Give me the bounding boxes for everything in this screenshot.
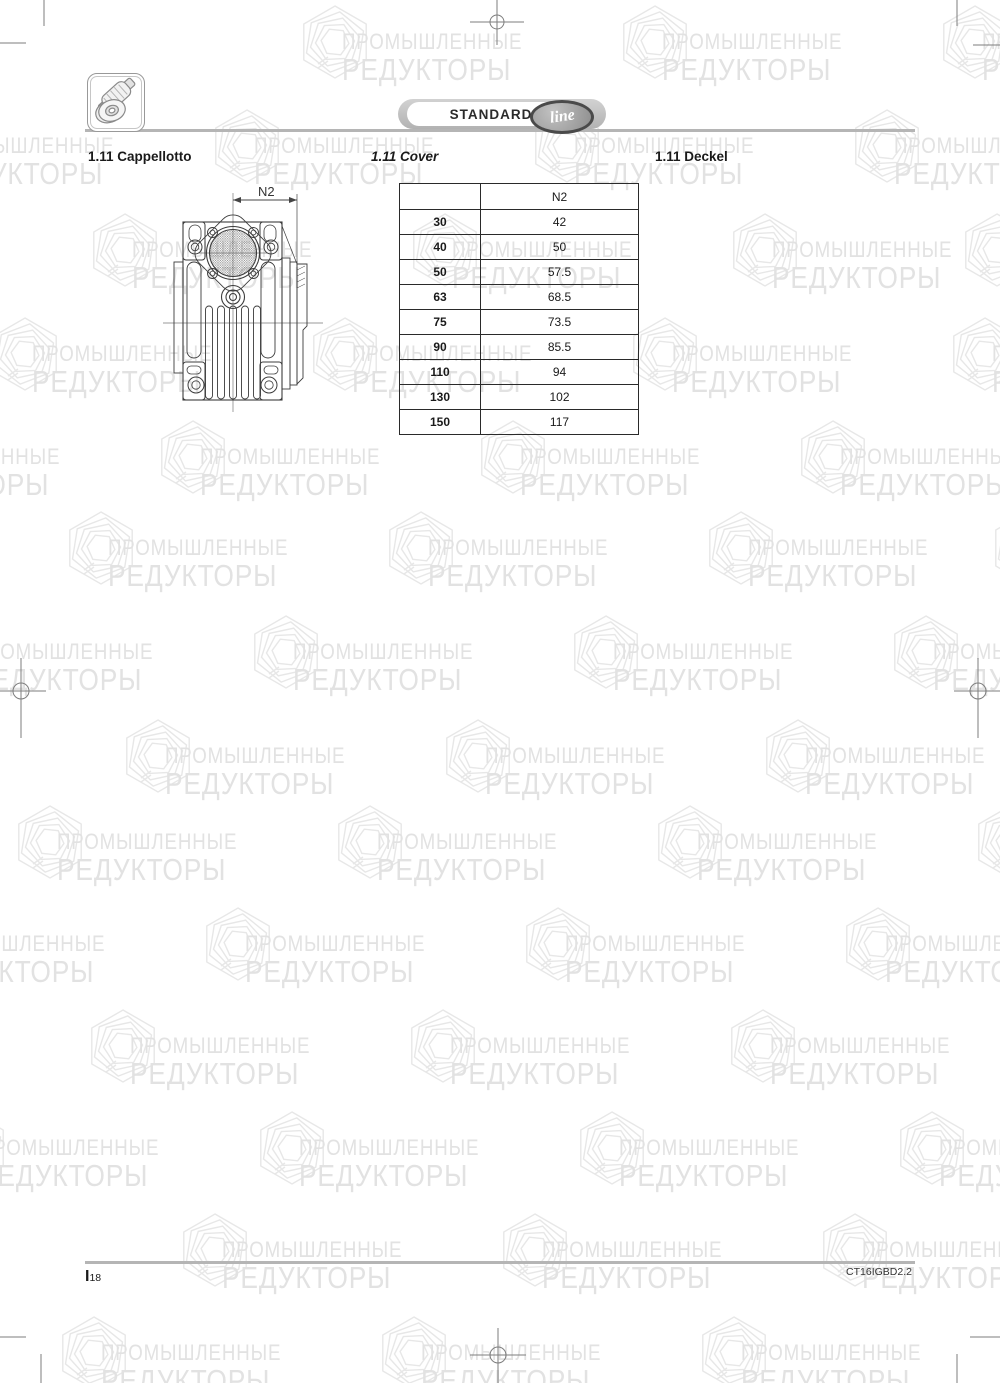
hexagon-spiral-icon	[618, 2, 693, 82]
watermark: ПРОМЫШЛЕННЫЕРЕДУКТОРЫ	[628, 314, 858, 400]
watermark-line2: РЕДУКТОРЫ	[672, 366, 852, 398]
watermark-line1: ПРОМЫШЛЕННЫЕ	[542, 1238, 722, 1262]
watermark: ПРОМЫШЛЕННЫЕРЕДУКТОРЫ	[178, 1210, 408, 1296]
watermark-text: ПРОМЫШЛЕННЫЕРЕДУКТОРЫ	[982, 30, 1000, 86]
hexagon-spiral-icon	[86, 1006, 161, 1086]
watermark-line2: РЕДУКТОРЫ	[741, 1365, 921, 1383]
hexagon-spiral-icon	[726, 1006, 801, 1086]
watermark: ПРОМЫШЛЕННЫЕРЕДУКТОРЫ	[249, 612, 479, 698]
table-row: 7573.5	[400, 310, 639, 335]
n2-table: N2 304240505057.56368.57573.59085.511094…	[399, 183, 639, 435]
watermark-text: ПРОМЫШЛЕННЫЕРЕДУКТОРЫ	[299, 1136, 479, 1192]
watermark-text: ПРОМЫШЛЕННЫЕРЕДУКТОРЫ	[613, 640, 793, 696]
watermark: ПРОМЫШЛЕННЫЕРЕДУКТОРЫ	[653, 802, 883, 888]
watermark: ПРОМЫШЛЕННЫЕРЕДУКТОРЫ	[298, 2, 528, 88]
watermark-line2: РЕДУКТОРЫ	[885, 956, 1000, 988]
watermark: ПРОМЫШЛЕННЫЕРЕДУКТОРЫ	[818, 1210, 1000, 1296]
watermark-line2: РЕДУКТОРЫ	[57, 854, 237, 886]
n2-table-body: 304240505057.56368.57573.59085.511094130…	[400, 210, 639, 435]
watermark-line1: ПРОМЫШЛЕННЫЕ	[748, 536, 928, 560]
catalog-page: ПРОМЫШЛЕННЫЕРЕДУКТОРЫПРОМЫШЛЕННЫЕРЕДУКТО…	[0, 0, 1000, 1383]
hexagon-spiral-icon	[521, 904, 596, 984]
watermark: ПРОМЫШЛЕННЫЕРЕДУКТОРЫ	[121, 716, 351, 802]
watermark: ПРОМЫШЛЕННЫЕРЕДУКТОРЫ	[64, 508, 294, 594]
watermark-text: ПРОМЫШЛЕННЫЕРЕДУКТОРЫ	[672, 342, 852, 398]
crop-mark-top-right	[957, 0, 1000, 45]
watermark-text: ПРОМЫШЛЕННЫЕРЕДУКТОРЫ	[450, 1034, 630, 1090]
watermark-line1: ПРОМЫШЛЕННЫЕ	[485, 744, 665, 768]
watermark: ПРОМЫШЛЕННЫЕРЕДУКТОРЫ	[761, 716, 991, 802]
crop-mark-bottom-left	[0, 1337, 41, 1383]
worm-gearbox-icon	[87, 73, 145, 132]
table-row: 5057.5	[400, 260, 639, 285]
watermark-line1: ПРОМЫШЛЕННЫЕ	[293, 640, 473, 664]
hexagon-spiral-icon	[697, 1313, 772, 1383]
watermark-line2: РЕДУКТОРЫ	[0, 956, 105, 988]
hexagon-spiral-icon	[889, 612, 964, 692]
hexagon-spiral-icon	[88, 210, 163, 290]
watermark-text: ПРОМЫШЛЕННЫЕРЕДУКТОРЫ	[748, 536, 928, 592]
watermark-text: ПРОМЫШЛЕННЫЕРЕДУКТОРЫ	[697, 830, 877, 886]
standard-label: STANDARD	[450, 107, 533, 122]
watermark-line1: ПРОМЫШЛЕННЫЕ	[0, 1136, 159, 1160]
table-row: 6368.5	[400, 285, 639, 310]
hexagon-spiral-icon	[850, 106, 925, 186]
hexagon-spiral-icon	[575, 1108, 650, 1188]
watermark: ПРОМЫШЛЕННЫЕРЕДУКТОРЫ	[384, 508, 614, 594]
hexagon-spiral-icon	[406, 1006, 481, 1086]
watermark-text: ПРОМЫШЛЕННЫЕРЕДУКТОРЫ	[772, 238, 952, 294]
watermark-line2: РЕДУКТОРЫ	[165, 768, 345, 800]
watermark-text: ПРОМЫШЛЕННЫЕРЕДУКТОРЫ	[165, 744, 345, 800]
watermark: ПРОМЫШЛЕННЫЕРЕДУКТОРЫ	[697, 1313, 927, 1383]
watermark: ПРОМЫШЛЕННЫЕРЕДУКТОРЫ	[0, 1108, 165, 1194]
watermark: ПРОМЫШЛЕННЫЕРЕДУКТОРЫ	[704, 508, 934, 594]
watermark: ПРОМЫШЛЕННЫЕРЕДУКТОРЫ	[850, 106, 1000, 192]
hexagon-spiral-icon	[653, 802, 728, 882]
watermark: ПРОМЫШЛЕННЫЕРЕДУКТОРЫ	[406, 1006, 636, 1092]
watermark-text: ПРОМЫШЛЕННЫЕРЕДУКТОРЫ	[741, 1341, 921, 1383]
watermark: ПРОМЫШЛЕННЫЕРЕДУКТОРЫ	[990, 508, 1000, 594]
hexagon-spiral-icon	[0, 314, 63, 394]
watermark-line2: РЕДУКТОРЫ	[342, 54, 522, 86]
table-row: 4050	[400, 235, 639, 260]
watermark-line1: ПРОМЫШЛЕННЫЕ	[0, 932, 105, 956]
heading-german: 1.11 Deckel	[655, 149, 728, 164]
watermark-text: ПРОМЫШЛЕННЫЕРЕДУКТОРЫ	[520, 445, 700, 501]
hexagon-spiral-icon	[498, 1210, 573, 1290]
hexagon-spiral-icon	[761, 716, 836, 796]
hexagon-spiral-icon	[255, 1108, 330, 1188]
watermark-line1: ПРОМЫШЛЕННЫЕ	[933, 640, 1000, 664]
watermark-line1: ПРОМЫШЛЕННЫЕ	[885, 932, 1000, 956]
watermark-line2: РЕДУКТОРЫ	[485, 768, 665, 800]
watermark: ПРОМЫШЛЕННЫЕРЕДУКТОРЫ	[895, 1108, 1000, 1194]
dimension-label: N2	[258, 186, 275, 199]
watermark: ПРОМЫШЛЕННЫЕРЕДУКТОРЫ	[938, 2, 1000, 88]
watermark-line1: ПРОМЫШЛЕННЫЕ	[862, 1238, 1000, 1262]
watermark-text: ПРОМЫШЛЕННЫЕРЕДУКТОРЫ	[377, 830, 557, 886]
watermark-line1: ПРОМЫШЛЕННЫЕ	[101, 1341, 281, 1365]
watermark-text: ПРОМЫШЛЕННЫЕРЕДУКТОРЫ	[933, 640, 1000, 696]
watermark-line2: РЕДУКТОРЫ	[992, 366, 1000, 398]
watermark-line2: РЕДУКТОРЫ	[101, 1365, 281, 1383]
hexagon-spiral-icon	[0, 1108, 10, 1188]
watermark: ПРОМЫШЛЕННЫЕРЕДУКТОРЫ	[521, 904, 751, 990]
watermark: ПРОМЫШЛЕННЫЕРЕДУКТОРЫ	[201, 904, 431, 990]
watermark-line2: РЕДУКТОРЫ	[245, 956, 425, 988]
watermark-line2: РЕДУКТОРЫ	[840, 469, 1000, 501]
watermark-text: ПРОМЫШЛЕННЫЕРЕДУКТОРЫ	[992, 342, 1000, 398]
watermark-line2: РЕДУКТОРЫ	[200, 469, 380, 501]
watermark-line2: РЕДУКТОРЫ	[0, 664, 153, 696]
watermark-line1: ПРОМЫШЛЕННЫЕ	[245, 932, 425, 956]
watermark: ПРОМЫШЛЕННЫЕРЕДУКТОРЫ	[57, 1313, 287, 1383]
watermark-text: ПРОМЫШЛЕННЫЕРЕДУКТОРЫ	[342, 30, 522, 86]
watermark-text: ПРОМЫШЛЕННЫЕРЕДУКТОРЫ	[565, 932, 745, 988]
watermark-line2: РЕДУКТОРЫ	[450, 1058, 630, 1090]
doc-code: CT16IGBD2.2	[0, 1266, 912, 1278]
watermark: ПРОМЫШЛЕННЫЕРЕДУКТОРЫ	[569, 612, 799, 698]
watermark-line1: ПРОМЫШЛЕННЫЕ	[165, 744, 345, 768]
watermark: ПРОМЫШЛЕННЫЕРЕДУКТОРЫ	[889, 612, 1000, 698]
watermark: ПРОМЫШЛЕННЫЕРЕДУКТОРЫ	[156, 417, 386, 503]
hexagon-spiral-icon	[628, 314, 703, 394]
watermark-text: ПРОМЫШЛЕННЫЕРЕДУКТОРЫ	[293, 640, 473, 696]
hexagon-spiral-icon	[960, 210, 1000, 290]
watermark-line2: РЕДУКТОРЫ	[565, 956, 745, 988]
heading-english: 1.11 Cover	[371, 149, 438, 164]
watermark: ПРОМЫШЛЕННЫЕРЕДУКТОРЫ	[618, 2, 848, 88]
watermark-line2: РЕДУКТОРЫ	[613, 664, 793, 696]
table-row: 3042	[400, 210, 639, 235]
watermark-line2: РЕДУКТОРЫ	[894, 158, 1000, 190]
size-cell: 75	[400, 310, 481, 335]
watermark-line2: РЕДУКТОРЫ	[933, 664, 1000, 696]
table-row: 11094	[400, 360, 639, 385]
watermark-line2: РЕДУКТОРЫ	[982, 54, 1000, 86]
n2-value-cell: 73.5	[481, 310, 639, 335]
n2-value-cell: 85.5	[481, 335, 639, 360]
watermark: ПРОМЫШЛЕННЫЕРЕДУКТОРЫ	[255, 1108, 485, 1194]
watermark-text: ПРОМЫШЛЕННЫЕРЕДУКТОРЫ	[245, 932, 425, 988]
watermark: ПРОМЫШЛЕННЫЕРЕДУКТОРЫ	[333, 802, 563, 888]
watermark-text: ПРОМЫШЛЕННЫЕРЕДУКТОРЫ	[0, 640, 153, 696]
size-cell: 130	[400, 385, 481, 410]
watermark-line1: ПРОМЫШЛЕННЫЕ	[57, 830, 237, 854]
watermark-line1: ПРОМЫШЛЕННЫЕ	[108, 536, 288, 560]
watermark-line2: РЕДУКТОРЫ	[0, 1160, 159, 1192]
watermark-line1: ПРОМЫШЛЕННЫЕ	[299, 1136, 479, 1160]
n2-value-cell: 117	[481, 410, 639, 435]
watermark-line2: РЕДУКТОРЫ	[939, 1160, 1000, 1192]
table-row: 9085.5	[400, 335, 639, 360]
watermark-line2: РЕДУКТОРЫ	[377, 854, 557, 886]
watermark-text: ПРОМЫШЛЕННЫЕРЕДУКТОРЫ	[840, 445, 1000, 501]
watermark-text: ПРОМЫШЛЕННЫЕРЕДУКТОРЫ	[485, 744, 665, 800]
watermark-line1: ПРОМЫШЛЕННЫЕ	[377, 830, 557, 854]
watermark-line1: ПРОМЫШЛЕННЫЕ	[672, 342, 852, 366]
watermark-line1: ПРОМЫШЛЕННЫЕ	[222, 1238, 402, 1262]
hexagon-spiral-icon	[796, 417, 871, 497]
n2-column-header: N2	[481, 184, 639, 210]
watermark-line2: РЕДУКТОРЫ	[421, 1365, 601, 1383]
watermark-line2: РЕДУКТОРЫ	[130, 1058, 310, 1090]
watermark-line2: РЕДУКТОРЫ	[293, 664, 473, 696]
watermark-line1: ПРОМЫШЛЕННЫЕ	[772, 238, 952, 262]
watermark-text: ПРОМЫШЛЕННЫЕРЕДУКТОРЫ	[101, 1341, 281, 1383]
hexagon-spiral-icon	[441, 716, 516, 796]
hexagon-spiral-icon	[377, 1313, 452, 1383]
watermark-line1: ПРОМЫШЛЕННЫЕ	[130, 1034, 310, 1058]
watermark-line2: РЕДУКТОРЫ	[697, 854, 877, 886]
heading-italian: 1.11 Cappellotto	[88, 149, 192, 164]
watermark: ПРОМЫШЛЕННЫЕРЕДУКТОРЫ	[575, 1108, 805, 1194]
watermark-line1: ПРОМЫШЛЕННЫЕ	[662, 30, 842, 54]
hexagon-spiral-icon	[973, 802, 1000, 882]
watermark-line2: РЕДУКТОРЫ	[0, 469, 60, 501]
hexagon-spiral-icon	[210, 106, 285, 186]
size-cell: 90	[400, 335, 481, 360]
watermark-line2: РЕДУКТОРЫ	[428, 560, 608, 592]
registration-mark-left	[0, 658, 46, 738]
hexagon-spiral-icon	[841, 904, 916, 984]
hexagon-spiral-icon	[728, 210, 803, 290]
watermark-line1: ПРОМЫШЛЕННЫЕ	[428, 536, 608, 560]
watermark: ПРОМЫШЛЕННЫЕРЕДУКТОРЫ	[973, 802, 1000, 888]
watermark-text: ПРОМЫШЛЕННЫЕРЕДУКТОРЫ	[0, 932, 105, 988]
hexagon-spiral-icon	[704, 508, 779, 588]
watermark-line2: РЕДУКТОРЫ	[748, 560, 928, 592]
watermark-text: ПРОМЫШЛЕННЫЕРЕДУКТОРЫ	[108, 536, 288, 592]
watermark-line1: ПРОМЫШЛЕННЫЕ	[619, 1136, 799, 1160]
hexagon-spiral-icon	[384, 508, 459, 588]
watermark-line1: ПРОМЫШЛЕННЫЕ	[421, 1341, 601, 1365]
hexagon-spiral-icon	[121, 716, 196, 796]
watermark-line1: ПРОМЫШЛЕННЫЕ	[520, 445, 700, 469]
watermark-line1: ПРОМЫШЛЕННЫЕ	[982, 30, 1000, 54]
hexagon-spiral-icon	[249, 612, 324, 692]
n2-value-cell: 50	[481, 235, 639, 260]
watermark-line2: РЕДУКТОРЫ	[108, 560, 288, 592]
watermark: ПРОМЫШЛЕННЫЕРЕДУКТОРЫ	[0, 904, 111, 990]
watermark-line1: ПРОМЫШЛЕННЫЕ	[0, 445, 60, 469]
watermark-line2: РЕДУКТОРЫ	[619, 1160, 799, 1192]
watermark-text: ПРОМЫШЛЕННЫЕРЕДУКТОРЫ	[619, 1136, 799, 1192]
watermark-text: ПРОМЫШЛЕННЫЕРЕДУКТОРЫ	[894, 134, 1000, 190]
watermark-line1: ПРОМЫШЛЕННЫЕ	[741, 1341, 921, 1365]
footer-rule	[85, 1261, 915, 1264]
watermark-line1: ПРОМЫШЛЕННЫЕ	[613, 640, 793, 664]
hexagon-spiral-icon	[895, 1108, 970, 1188]
watermark: ПРОМЫШЛЕННЫЕРЕДУКТОРЫ	[377, 1313, 607, 1383]
watermark-line2: РЕДУКТОРЫ	[520, 469, 700, 501]
watermark-line1: ПРОМЫШЛЕННЫЕ	[697, 830, 877, 854]
watermark-text: ПРОМЫШЛЕННЫЕРЕДУКТОРЫ	[200, 445, 380, 501]
line-badge: line	[530, 100, 594, 134]
watermark-line1: ПРОМЫШЛЕННЫЕ	[450, 1034, 630, 1058]
watermark-line1: ПРОМЫШЛЕННЫЕ	[770, 1034, 950, 1058]
size-cell: 63	[400, 285, 481, 310]
icon-inner-border	[90, 76, 142, 129]
standard-line-logo: STANDARD line	[398, 99, 606, 129]
hexagon-spiral-icon	[938, 2, 1000, 82]
watermark-line1: ПРОМЫШЛЕННЫЕ	[894, 134, 1000, 158]
hexagon-spiral-icon	[333, 802, 408, 882]
registration-mark-top	[470, 0, 524, 45]
hexagon-spiral-icon	[948, 314, 1000, 394]
watermark-text: ПРОМЫШЛЕННЫЕРЕДУКТОРЫ	[805, 744, 985, 800]
hexagon-spiral-icon	[818, 1210, 893, 1290]
size-cell: 40	[400, 235, 481, 260]
watermark-line1: ПРОМЫШЛЕННЫЕ	[939, 1136, 1000, 1160]
watermark-text: ПРОМЫШЛЕННЫЕРЕДУКТОРЫ	[939, 1136, 1000, 1192]
n2-value-cell: 57.5	[481, 260, 639, 285]
crop-mark-bottom-right	[957, 1337, 1000, 1383]
watermark-line1: ПРОМЫШЛЕННЫЕ	[0, 640, 153, 664]
table-header-row: N2	[400, 184, 639, 210]
watermark-text: ПРОМЫШЛЕННЫЕРЕДУКТОРЫ	[0, 445, 60, 501]
hexagon-spiral-icon	[178, 1210, 253, 1290]
size-cell: 30	[400, 210, 481, 235]
table-row: 130102	[400, 385, 639, 410]
hexagon-spiral-icon	[569, 612, 644, 692]
watermark-line1: ПРОМЫШЛЕННЫЕ	[565, 932, 745, 956]
watermark: ПРОМЫШЛЕННЫЕРЕДУКТОРЫ	[86, 1006, 316, 1092]
watermark-line1: ПРОМЫШЛЕННЫЕ	[805, 744, 985, 768]
watermark-text: ПРОМЫШЛЕННЫЕРЕДУКТОРЫ	[885, 932, 1000, 988]
watermark-line1: ПРОМЫШЛЕННЫЕ	[200, 445, 380, 469]
empty-header-cell	[400, 184, 481, 210]
watermark: ПРОМЫШЛЕННЫЕРЕДУКТОРЫ	[728, 210, 958, 296]
watermark-line2: РЕДУКТОРЫ	[662, 54, 842, 86]
watermark-line2: РЕДУКТОРЫ	[770, 1058, 950, 1090]
hexagon-spiral-icon	[0, 612, 4, 692]
watermark-line1: ПРОМЫШЛЕННЫЕ	[992, 342, 1000, 366]
watermark: ПРОМЫШЛЕННЫЕРЕДУКТОРЫ	[441, 716, 671, 802]
hexagon-spiral-icon	[990, 508, 1000, 588]
watermark-text: ПРОМЫШЛЕННЫЕРЕДУКТОРЫ	[770, 1034, 950, 1090]
registration-mark-right	[954, 658, 1000, 738]
watermark-text: ПРОМЫШЛЕННЫЕРЕДУКТОРЫ	[421, 1341, 601, 1383]
watermark-text: ПРОМЫШЛЕННЫЕРЕДУКТОРЫ	[428, 536, 608, 592]
watermark: ПРОМЫШЛЕННЫЕРЕДУКТОРЫ	[498, 1210, 728, 1296]
watermark: ПРОМЫШЛЕННЫЕРЕДУКТОРЫ	[0, 612, 159, 698]
watermark: ПРОМЫШЛЕННЫЕРЕДУКТОРЫ	[13, 802, 243, 888]
header-rule	[85, 129, 915, 132]
n2-value-cell: 94	[481, 360, 639, 385]
size-cell: 150	[400, 410, 481, 435]
watermark-text: ПРОМЫШЛЕННЫЕРЕДУКТОРЫ	[662, 30, 842, 86]
watermark-line2: РЕДУКТОРЫ	[772, 262, 952, 294]
hexagon-spiral-icon	[64, 508, 139, 588]
size-cell: 50	[400, 260, 481, 285]
table-row: 150117	[400, 410, 639, 435]
watermark: ПРОМЫШЛЕННЫЕРЕДУКТОРЫ	[0, 417, 66, 503]
hexagon-spiral-icon	[156, 417, 231, 497]
watermark: ПРОМЫШЛЕННЫЕРЕДУКТОРЫ	[841, 904, 1000, 990]
watermark-text: ПРОМЫШЛЕННЫЕРЕДУКТОРЫ	[0, 1136, 159, 1192]
n2-value-cell: 42	[481, 210, 639, 235]
hexagon-spiral-icon	[201, 904, 276, 984]
gearbox-drawing: N2	[158, 186, 333, 421]
hexagon-spiral-icon	[298, 2, 373, 82]
n2-value-cell: 102	[481, 385, 639, 410]
watermark-text: ПРОМЫШЛЕННЫЕРЕДУКТОРЫ	[57, 830, 237, 886]
crop-mark-top-left	[0, 0, 44, 43]
size-cell: 110	[400, 360, 481, 385]
watermark: ПРОМЫШЛЕННЫЕРЕДУКТОРЫ	[948, 314, 1000, 400]
line-script-label: line	[548, 106, 575, 127]
hexagon-spiral-icon	[57, 1313, 132, 1383]
watermark-line2: РЕДУКТОРЫ	[805, 768, 985, 800]
hexagon-spiral-icon	[13, 802, 88, 882]
watermark-text: ПРОМЫШЛЕННЫЕРЕДУКТОРЫ	[130, 1034, 310, 1090]
watermark: ПРОМЫШЛЕННЫЕРЕДУКТОРЫ	[796, 417, 1000, 503]
watermark: ПРОМЫШЛЕННЫЕРЕДУКТОРЫ	[960, 210, 1000, 296]
watermark-line1: ПРОМЫШЛЕННЫЕ	[342, 30, 522, 54]
watermark: ПРОМЫШЛЕННЫЕРЕДУКТОРЫ	[726, 1006, 956, 1092]
registration-mark-bottom	[470, 1328, 526, 1383]
n2-value-cell: 68.5	[481, 285, 639, 310]
watermark-line2: РЕДУКТОРЫ	[299, 1160, 479, 1192]
watermark-line1: ПРОМЫШЛЕННЫЕ	[840, 445, 1000, 469]
